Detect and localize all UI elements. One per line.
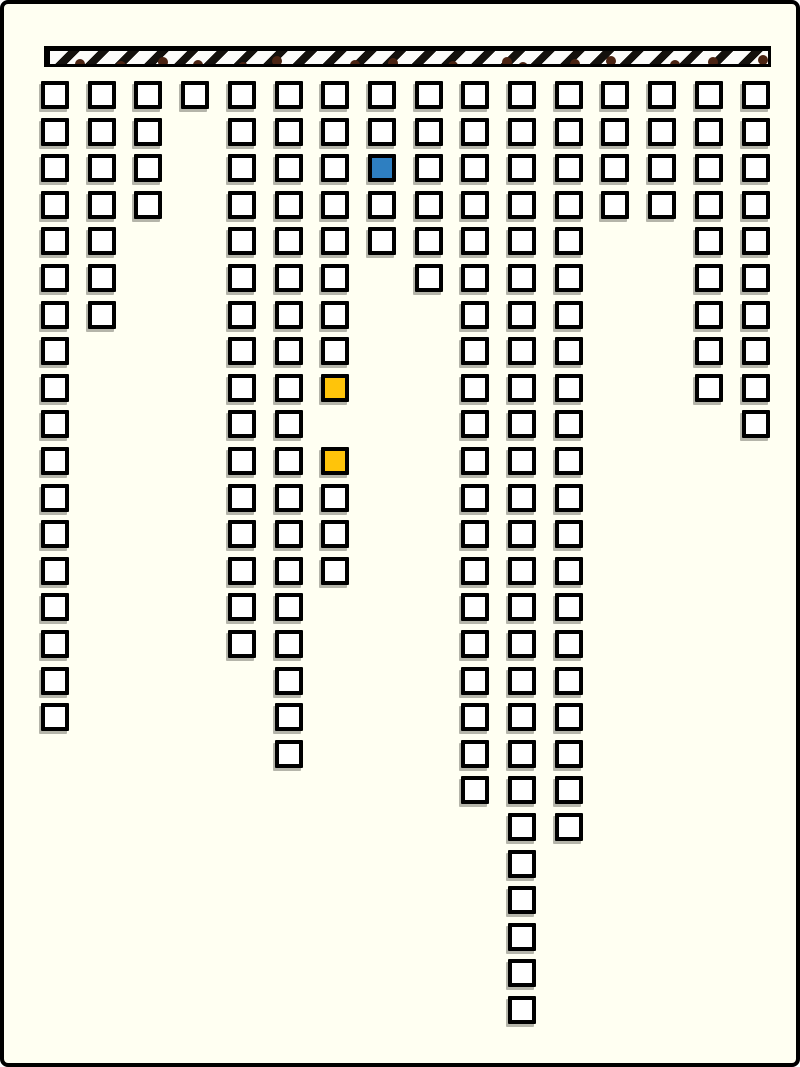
square[interactable]: [601, 191, 629, 219]
square[interactable]: [508, 374, 536, 402]
square[interactable]: [321, 81, 349, 109]
square[interactable]: [415, 118, 443, 146]
square[interactable]: [461, 301, 489, 329]
square[interactable]: [508, 740, 536, 768]
square[interactable]: [555, 593, 583, 621]
square[interactable]: [41, 227, 69, 255]
yellow-square[interactable]: [321, 447, 349, 475]
square[interactable]: [41, 301, 69, 329]
square[interactable]: [275, 191, 303, 219]
chip-dot: [518, 62, 528, 67]
square[interactable]: [508, 996, 536, 1024]
square[interactable]: [181, 81, 209, 109]
square[interactable]: [41, 337, 69, 365]
square[interactable]: [695, 374, 723, 402]
chip-dot: [708, 57, 718, 67]
square[interactable]: [742, 301, 770, 329]
square[interactable]: [508, 118, 536, 146]
square[interactable]: [461, 264, 489, 292]
chip-dot: [448, 61, 458, 67]
square[interactable]: [508, 886, 536, 914]
square[interactable]: [695, 227, 723, 255]
square[interactable]: [275, 227, 303, 255]
square[interactable]: [508, 301, 536, 329]
square[interactable]: [275, 374, 303, 402]
square[interactable]: [321, 154, 349, 182]
square[interactable]: [275, 557, 303, 585]
hatched-bar: [44, 46, 771, 67]
square[interactable]: [368, 118, 396, 146]
square[interactable]: [508, 520, 536, 548]
square[interactable]: [134, 154, 162, 182]
square[interactable]: [275, 410, 303, 438]
square[interactable]: [508, 593, 536, 621]
chip-dot: [670, 60, 680, 67]
square[interactable]: [228, 520, 256, 548]
square[interactable]: [415, 264, 443, 292]
square[interactable]: [695, 264, 723, 292]
square[interactable]: [41, 520, 69, 548]
square[interactable]: [508, 484, 536, 512]
square[interactable]: [228, 593, 256, 621]
square[interactable]: [275, 593, 303, 621]
chip-dot: [388, 58, 398, 67]
square[interactable]: [134, 191, 162, 219]
square[interactable]: [695, 301, 723, 329]
square[interactable]: [742, 337, 770, 365]
square[interactable]: [555, 264, 583, 292]
square[interactable]: [41, 81, 69, 109]
square[interactable]: [368, 81, 396, 109]
square[interactable]: [461, 593, 489, 621]
square[interactable]: [555, 776, 583, 804]
square[interactable]: [555, 813, 583, 841]
square[interactable]: [228, 447, 256, 475]
square[interactable]: [742, 118, 770, 146]
square[interactable]: [461, 630, 489, 658]
square[interactable]: [321, 337, 349, 365]
diagram-canvas: [0, 0, 800, 1067]
square[interactable]: [134, 81, 162, 109]
square[interactable]: [461, 410, 489, 438]
chip-dot: [116, 61, 126, 67]
square[interactable]: [228, 630, 256, 658]
square[interactable]: [461, 227, 489, 255]
chip-dot: [238, 62, 248, 67]
square[interactable]: [228, 557, 256, 585]
square[interactable]: [461, 557, 489, 585]
square[interactable]: [695, 337, 723, 365]
square[interactable]: [228, 81, 256, 109]
square[interactable]: [321, 227, 349, 255]
square[interactable]: [228, 374, 256, 402]
square[interactable]: [461, 154, 489, 182]
square[interactable]: [555, 410, 583, 438]
chip-dot: [606, 56, 616, 66]
chip-dot: [502, 57, 512, 67]
square[interactable]: [88, 301, 116, 329]
square[interactable]: [648, 191, 676, 219]
square[interactable]: [41, 410, 69, 438]
square[interactable]: [275, 264, 303, 292]
square[interactable]: [275, 667, 303, 695]
square[interactable]: [742, 374, 770, 402]
square[interactable]: [461, 118, 489, 146]
chip-dot: [758, 55, 768, 65]
square[interactable]: [461, 447, 489, 475]
square[interactable]: [461, 337, 489, 365]
square[interactable]: [41, 667, 69, 695]
square[interactable]: [648, 118, 676, 146]
square[interactable]: [41, 374, 69, 402]
chip-dot: [272, 56, 282, 66]
square[interactable]: [41, 154, 69, 182]
square[interactable]: [228, 154, 256, 182]
square[interactable]: [555, 630, 583, 658]
square[interactable]: [555, 154, 583, 182]
chip-dot: [193, 60, 203, 67]
square[interactable]: [275, 447, 303, 475]
square[interactable]: [508, 447, 536, 475]
square[interactable]: [275, 337, 303, 365]
chip-dot: [350, 60, 360, 67]
square[interactable]: [321, 191, 349, 219]
square[interactable]: [228, 410, 256, 438]
square[interactable]: [742, 191, 770, 219]
square[interactable]: [321, 484, 349, 512]
square[interactable]: [508, 191, 536, 219]
square[interactable]: [555, 374, 583, 402]
square[interactable]: [555, 301, 583, 329]
square[interactable]: [275, 740, 303, 768]
square[interactable]: [555, 557, 583, 585]
square[interactable]: [555, 191, 583, 219]
chip-dot: [570, 59, 580, 67]
square[interactable]: [228, 118, 256, 146]
square[interactable]: [508, 227, 536, 255]
square[interactable]: [508, 630, 536, 658]
square[interactable]: [41, 703, 69, 731]
square[interactable]: [695, 81, 723, 109]
square[interactable]: [275, 301, 303, 329]
square[interactable]: [275, 154, 303, 182]
square[interactable]: [228, 337, 256, 365]
square[interactable]: [742, 227, 770, 255]
square[interactable]: [601, 118, 629, 146]
square[interactable]: [461, 667, 489, 695]
square[interactable]: [508, 557, 536, 585]
square[interactable]: [555, 118, 583, 146]
square[interactable]: [88, 118, 116, 146]
square[interactable]: [461, 703, 489, 731]
yellow-square[interactable]: [321, 374, 349, 402]
square[interactable]: [41, 557, 69, 585]
square[interactable]: [461, 776, 489, 804]
square[interactable]: [134, 118, 162, 146]
square[interactable]: [368, 227, 396, 255]
square[interactable]: [508, 703, 536, 731]
square[interactable]: [695, 191, 723, 219]
square[interactable]: [508, 337, 536, 365]
square[interactable]: [555, 484, 583, 512]
square[interactable]: [228, 264, 256, 292]
square[interactable]: [41, 447, 69, 475]
square[interactable]: [275, 118, 303, 146]
chip-dot: [158, 57, 168, 67]
square[interactable]: [321, 520, 349, 548]
square[interactable]: [321, 264, 349, 292]
square[interactable]: [742, 81, 770, 109]
square[interactable]: [228, 191, 256, 219]
square[interactable]: [508, 154, 536, 182]
square[interactable]: [275, 484, 303, 512]
square[interactable]: [415, 191, 443, 219]
square[interactable]: [88, 264, 116, 292]
square[interactable]: [415, 154, 443, 182]
square[interactable]: [508, 410, 536, 438]
square[interactable]: [555, 447, 583, 475]
square[interactable]: [508, 776, 536, 804]
square[interactable]: [601, 154, 629, 182]
square[interactable]: [555, 740, 583, 768]
square[interactable]: [41, 593, 69, 621]
square[interactable]: [555, 227, 583, 255]
square[interactable]: [461, 520, 489, 548]
square[interactable]: [88, 81, 116, 109]
square[interactable]: [41, 191, 69, 219]
square[interactable]: [508, 667, 536, 695]
square[interactable]: [321, 118, 349, 146]
square[interactable]: [508, 923, 536, 951]
square[interactable]: [695, 154, 723, 182]
square[interactable]: [648, 154, 676, 182]
square[interactable]: [508, 81, 536, 109]
square[interactable]: [508, 264, 536, 292]
square[interactable]: [648, 81, 676, 109]
square[interactable]: [88, 154, 116, 182]
square[interactable]: [555, 667, 583, 695]
square[interactable]: [555, 520, 583, 548]
square[interactable]: [88, 191, 116, 219]
square[interactable]: [461, 374, 489, 402]
square[interactable]: [275, 630, 303, 658]
square[interactable]: [695, 118, 723, 146]
square[interactable]: [508, 813, 536, 841]
square[interactable]: [601, 81, 629, 109]
square[interactable]: [461, 191, 489, 219]
square[interactable]: [41, 630, 69, 658]
square[interactable]: [555, 337, 583, 365]
square[interactable]: [275, 703, 303, 731]
square[interactable]: [228, 301, 256, 329]
square[interactable]: [555, 81, 583, 109]
square[interactable]: [415, 227, 443, 255]
square[interactable]: [321, 557, 349, 585]
blue-square[interactable]: [368, 154, 396, 182]
square[interactable]: [275, 81, 303, 109]
square[interactable]: [555, 703, 583, 731]
square[interactable]: [461, 740, 489, 768]
square[interactable]: [275, 520, 303, 548]
square[interactable]: [228, 484, 256, 512]
square[interactable]: [742, 264, 770, 292]
square[interactable]: [41, 484, 69, 512]
square[interactable]: [321, 301, 349, 329]
square[interactable]: [415, 81, 443, 109]
square[interactable]: [228, 227, 256, 255]
square[interactable]: [508, 850, 536, 878]
square[interactable]: [368, 191, 396, 219]
square[interactable]: [742, 410, 770, 438]
chip-dot: [75, 59, 85, 67]
square[interactable]: [41, 264, 69, 292]
square[interactable]: [41, 118, 69, 146]
square[interactable]: [508, 959, 536, 987]
square[interactable]: [461, 81, 489, 109]
square[interactable]: [88, 227, 116, 255]
square[interactable]: [461, 484, 489, 512]
square[interactable]: [742, 154, 770, 182]
